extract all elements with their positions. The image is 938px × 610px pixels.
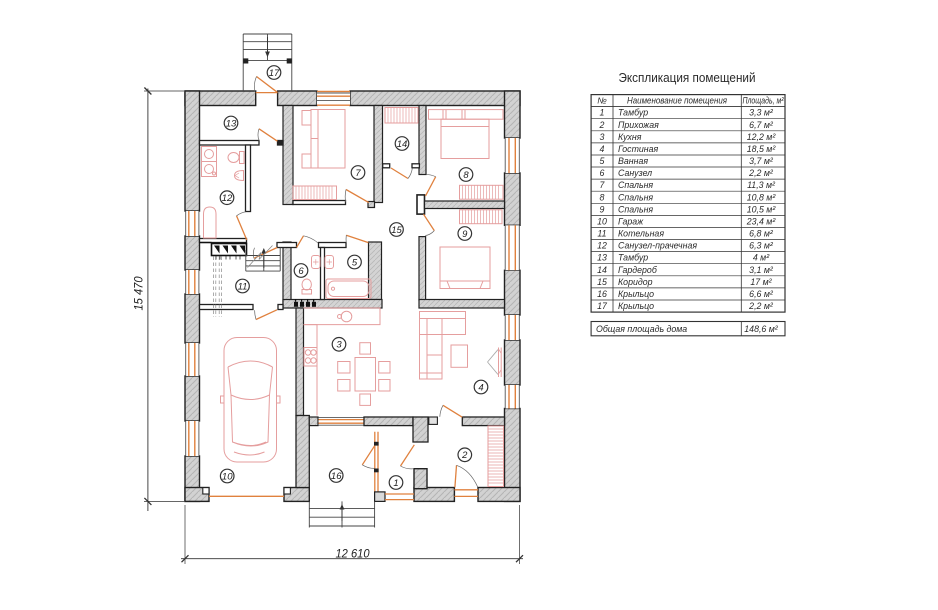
svg-text:Санузел-прачечная: Санузел-прачечная [618, 241, 697, 251]
svg-text:3,7 м²: 3,7 м² [749, 156, 774, 166]
svg-text:Гардероб: Гардероб [618, 265, 658, 275]
svg-text:3,1 м²: 3,1 м² [749, 265, 774, 275]
svg-text:13: 13 [597, 253, 607, 263]
svg-text:1: 1 [600, 108, 605, 118]
svg-text:Площадь, м²: Площадь, м² [743, 96, 785, 106]
svg-text:14: 14 [397, 139, 408, 150]
svg-text:11,3 м²: 11,3 м² [747, 180, 776, 190]
svg-text:2,2 м²: 2,2 м² [748, 301, 774, 311]
svg-text:14: 14 [597, 265, 607, 275]
svg-text:17: 17 [269, 68, 280, 79]
svg-text:№: № [597, 96, 607, 106]
svg-text:Коридор: Коридор [618, 277, 653, 287]
svg-text:11: 11 [597, 229, 606, 239]
svg-text:Прихожая: Прихожая [618, 120, 659, 130]
svg-text:10: 10 [597, 217, 607, 227]
svg-text:Котельная: Котельная [618, 229, 664, 239]
svg-text:Спальня: Спальня [618, 180, 653, 190]
svg-text:6,3 м²: 6,3 м² [749, 241, 774, 251]
svg-text:10,5 м²: 10,5 м² [747, 204, 777, 214]
svg-text:2,2 м²: 2,2 м² [748, 168, 774, 178]
svg-text:6: 6 [600, 168, 605, 178]
svg-text:9: 9 [600, 204, 605, 214]
svg-text:4: 4 [600, 144, 605, 154]
svg-text:Экспликация помещений: Экспликация помещений [619, 70, 756, 85]
svg-text:15: 15 [391, 225, 402, 236]
svg-text:18,5 м²: 18,5 м² [747, 144, 777, 154]
svg-text:8: 8 [463, 170, 469, 181]
svg-text:13: 13 [226, 118, 237, 129]
svg-text:15: 15 [597, 277, 607, 287]
svg-text:2: 2 [599, 120, 605, 130]
svg-text:17: 17 [597, 301, 608, 311]
svg-text:2: 2 [461, 450, 468, 461]
svg-text:15 470: 15 470 [132, 276, 146, 310]
svg-text:3: 3 [600, 132, 605, 142]
svg-text:6,7 м²: 6,7 м² [749, 120, 774, 130]
svg-text:16: 16 [331, 471, 342, 482]
svg-text:Общая площадь дома: Общая площадь дома [596, 324, 687, 334]
svg-text:16: 16 [597, 289, 607, 299]
svg-text:1: 1 [393, 478, 398, 489]
svg-text:3,3 м²: 3,3 м² [749, 108, 774, 118]
svg-text:10: 10 [222, 471, 233, 482]
svg-text:12,2 м²: 12,2 м² [747, 132, 777, 142]
svg-text:12: 12 [222, 193, 233, 204]
svg-text:12 610: 12 610 [336, 547, 370, 561]
svg-text:4: 4 [478, 382, 483, 393]
svg-text:11: 11 [238, 281, 248, 292]
svg-text:Ванная: Ванная [618, 156, 648, 166]
svg-text:3: 3 [336, 340, 342, 351]
svg-text:9: 9 [462, 229, 468, 240]
svg-text:Спальня: Спальня [618, 192, 653, 202]
svg-text:Спальня: Спальня [618, 204, 653, 214]
svg-text:5: 5 [600, 156, 605, 166]
svg-text:6,8 м²: 6,8 м² [749, 229, 774, 239]
svg-text:4 м²: 4 м² [753, 253, 770, 263]
svg-text:6,6 м²: 6,6 м² [749, 289, 774, 299]
svg-text:17 м²: 17 м² [750, 277, 772, 287]
svg-text:10,8 м²: 10,8 м² [747, 192, 777, 202]
svg-text:23,4 м²: 23,4 м² [746, 217, 777, 227]
svg-text:5: 5 [352, 257, 358, 268]
svg-text:148,6 м²: 148,6 м² [744, 324, 778, 334]
svg-text:Санузел: Санузел [618, 168, 652, 178]
svg-text:Крыльцо: Крыльцо [618, 289, 654, 299]
svg-text:Крыльцо: Крыльцо [618, 301, 654, 311]
svg-text:Наименование помещения: Наименование помещения [627, 96, 727, 106]
svg-text:Кухня: Кухня [618, 132, 642, 142]
svg-text:Тамбур: Тамбур [618, 253, 648, 263]
svg-text:6: 6 [298, 266, 304, 277]
svg-text:Тамбур: Тамбур [618, 108, 648, 118]
svg-text:12: 12 [597, 241, 607, 251]
svg-text:Гараж: Гараж [618, 217, 644, 227]
svg-text:7: 7 [355, 168, 361, 179]
svg-text:8: 8 [600, 192, 605, 202]
svg-text:Гостиная: Гостиная [618, 144, 659, 154]
